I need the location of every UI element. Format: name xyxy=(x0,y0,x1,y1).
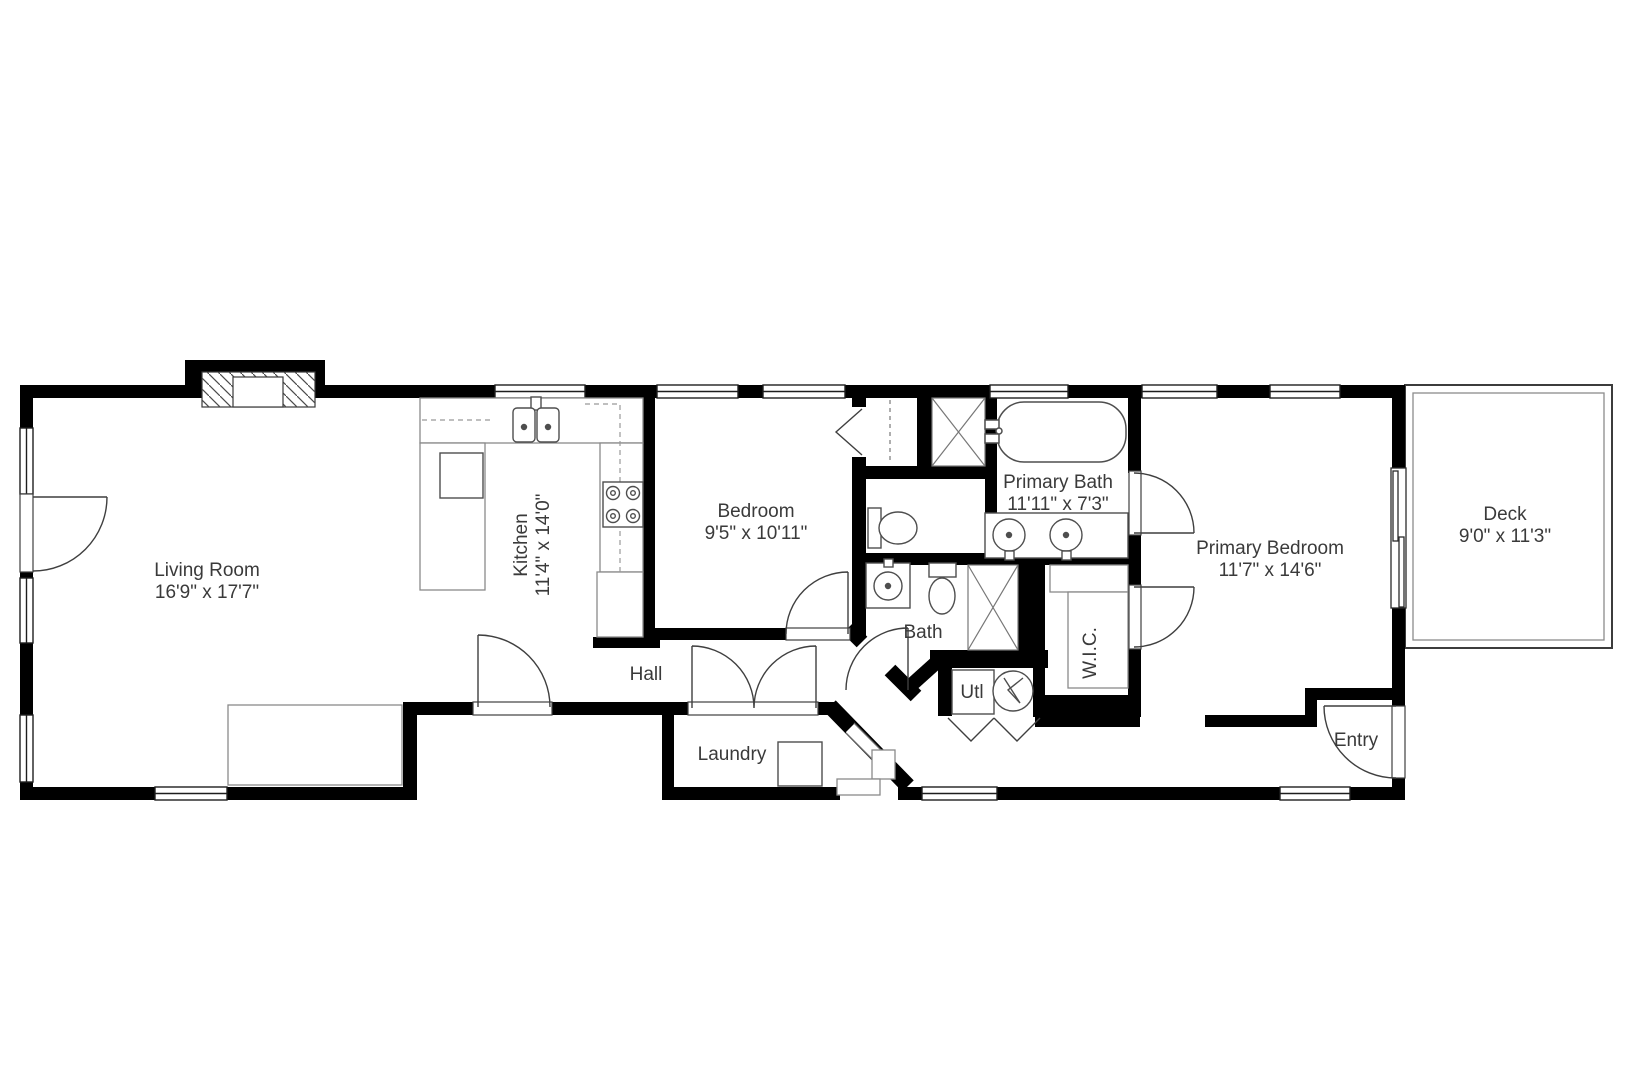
room-label-hall: Hall xyxy=(630,664,663,686)
shower-icon xyxy=(968,565,1018,650)
window-icon xyxy=(657,385,738,398)
water-heater-icon xyxy=(993,671,1033,711)
door-swing-icon xyxy=(786,572,850,640)
entry-steps xyxy=(837,750,895,795)
window-icon xyxy=(20,578,33,643)
toilet-icon xyxy=(868,508,917,548)
room-dimensions: 9'0" x 11'3" xyxy=(1459,526,1551,548)
window-icon xyxy=(20,428,33,494)
room-label-entry: Entry xyxy=(1334,730,1378,752)
room-name: Entry xyxy=(1334,730,1378,752)
floorplan-drawing xyxy=(0,0,1645,1080)
door-swing-icon xyxy=(473,635,552,715)
window-icon xyxy=(1280,787,1350,800)
room-name: Deck xyxy=(1459,504,1551,526)
window-icon xyxy=(1142,385,1217,398)
room-label-primary-bedroom: Primary Bedroom 11'7" x 14'6" xyxy=(1196,538,1344,582)
room-label-deck: Deck 9'0" x 11'3" xyxy=(1459,504,1551,548)
window-icon xyxy=(990,385,1068,398)
room-dimensions: 11'7" x 14'6" xyxy=(1196,560,1344,582)
floorplan-page: Living Room 16'9" x 17'7" Kitchen 11'4" … xyxy=(0,0,1645,1080)
fireplace-icon xyxy=(202,372,315,407)
bifold-door-icon xyxy=(948,718,994,741)
washer-icon xyxy=(778,742,822,786)
furniture-rect xyxy=(228,705,402,785)
double-vanity-icon xyxy=(985,513,1128,560)
double-door-swing-icon xyxy=(688,646,818,715)
refrigerator-icon xyxy=(440,453,483,498)
room-label-bedroom: Bedroom 9'5" x 10'11" xyxy=(705,501,808,545)
room-label-wic: W.I.C. xyxy=(1080,627,1102,679)
toilet-icon xyxy=(929,563,956,614)
window-icon xyxy=(155,787,227,800)
room-name: Utl xyxy=(960,682,983,704)
room-name: Laundry xyxy=(698,744,767,766)
vanity-sink-icon xyxy=(866,559,910,608)
room-name: Living Room xyxy=(154,560,260,582)
room-label-living-room: Living Room 16'9" x 17'7" xyxy=(154,560,260,604)
window-icon xyxy=(20,715,33,782)
window-icon xyxy=(922,787,997,800)
room-name: Primary Bath xyxy=(1003,472,1113,494)
room-label-kitchen: Kitchen 11'4" x 14'0" xyxy=(511,494,555,597)
room-label-bath: Bath xyxy=(903,622,942,644)
door-swing-icon xyxy=(1129,585,1194,649)
shower-icon xyxy=(932,398,985,466)
room-dimensions: 16'9" x 17'7" xyxy=(154,582,260,604)
room-name: Bedroom xyxy=(705,501,808,523)
window-icon xyxy=(1270,385,1340,398)
window-icon xyxy=(763,385,845,398)
room-name: W.I.C. xyxy=(1080,627,1102,679)
bifold-door-icon xyxy=(836,409,862,455)
room-label-utility: Utl xyxy=(960,682,983,704)
door-swing-icon xyxy=(1129,471,1194,535)
window-icon xyxy=(495,385,585,398)
room-dimensions: 9'5" x 10'11" xyxy=(705,523,808,545)
room-dimensions: 11'4" x 14'0" xyxy=(533,494,555,597)
bifold-door-icon xyxy=(994,718,1040,741)
door-swing-icon xyxy=(20,494,107,572)
room-label-laundry: Laundry xyxy=(698,744,767,766)
room-name: Primary Bedroom xyxy=(1196,538,1344,560)
room-name: Bath xyxy=(903,622,942,644)
bathtub-icon xyxy=(985,402,1126,462)
room-name: Kitchen xyxy=(511,494,533,597)
room-dimensions: 11'11" x 7'3" xyxy=(1003,494,1113,516)
stove-icon xyxy=(603,482,643,527)
room-label-primary-bath: Primary Bath 11'11" x 7'3" xyxy=(1003,472,1113,516)
sliding-door-icon xyxy=(1391,468,1406,608)
room-name: Hall xyxy=(630,664,663,686)
